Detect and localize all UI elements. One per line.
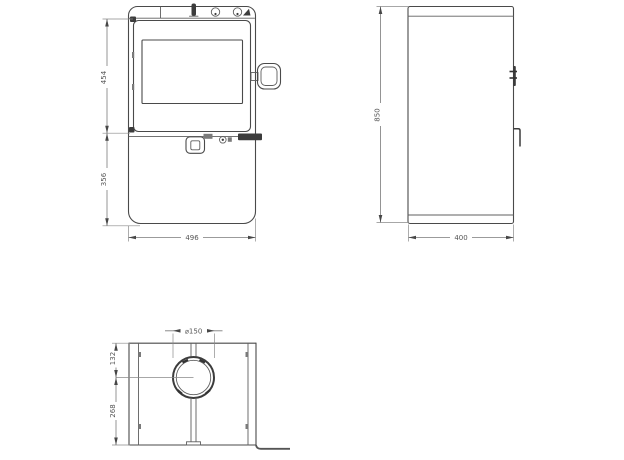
drawing-sheet: 454 356 496 (0, 0, 624, 460)
dim-label-850: 850 (374, 108, 382, 121)
dimension-front-lower-height: 356 (100, 133, 140, 226)
flue-notch (178, 390, 183, 394)
dimension-flue-diameter: ⌀150 (165, 326, 223, 358)
stove-body-outline (129, 7, 256, 224)
damper-assembly (238, 134, 262, 141)
dim-label-400: 400 (454, 234, 467, 242)
dim-label-diameter-150: ⌀150 (185, 327, 203, 335)
panel-nub (246, 424, 249, 429)
dim-label-132: 132 (109, 352, 117, 365)
panel-nub (139, 352, 142, 357)
door-handle-inner (261, 67, 277, 86)
side-handle (513, 66, 516, 86)
fixing-screw-dot (222, 139, 224, 141)
dim-label-496: 496 (185, 234, 199, 242)
air-control-lever (192, 4, 197, 17)
top-fixing-left-dot (214, 13, 216, 15)
dimension-front-width: 496 (129, 219, 256, 243)
latch-plate (204, 134, 213, 139)
flue-notch (206, 390, 211, 394)
panel-nub (139, 424, 142, 429)
door-hinge-tick-lower (132, 84, 134, 90)
top-bracket (243, 9, 251, 16)
door-hinge-tick-upper (132, 52, 134, 58)
panel-nub (246, 352, 249, 357)
door-window (142, 40, 243, 104)
front-view: 454 356 496 (100, 4, 281, 243)
dimension-side-depth: 400 (409, 225, 514, 243)
flue-pipe-upper (191, 343, 196, 357)
top-fixing-right-dot (236, 13, 238, 15)
dimension-flue-offset-bottom: 268 (109, 378, 130, 446)
stove-technical-drawing: 454 356 496 (0, 0, 624, 460)
ash-door-latch-inner (191, 141, 200, 150)
door-frame (134, 21, 251, 132)
ash-door-latch (186, 137, 205, 154)
dimension-side-height: 850 (374, 7, 410, 223)
door-hinge-bottom (129, 127, 135, 133)
fixing-block (228, 137, 232, 142)
side-latch-hook (514, 129, 521, 147)
dim-label-356: 356 (100, 172, 108, 186)
dimension-flue-offset-top: 132 (109, 343, 130, 377)
plan-handle-profile (256, 445, 290, 449)
dim-label-268: 268 (109, 404, 117, 417)
dim-label-454: 454 (100, 70, 108, 84)
flue-pipe-lower (191, 398, 196, 442)
side-view: 850 400 (374, 7, 521, 243)
plan-view: ⌀150 132 268 (109, 326, 290, 449)
side-body-outline (408, 7, 514, 224)
